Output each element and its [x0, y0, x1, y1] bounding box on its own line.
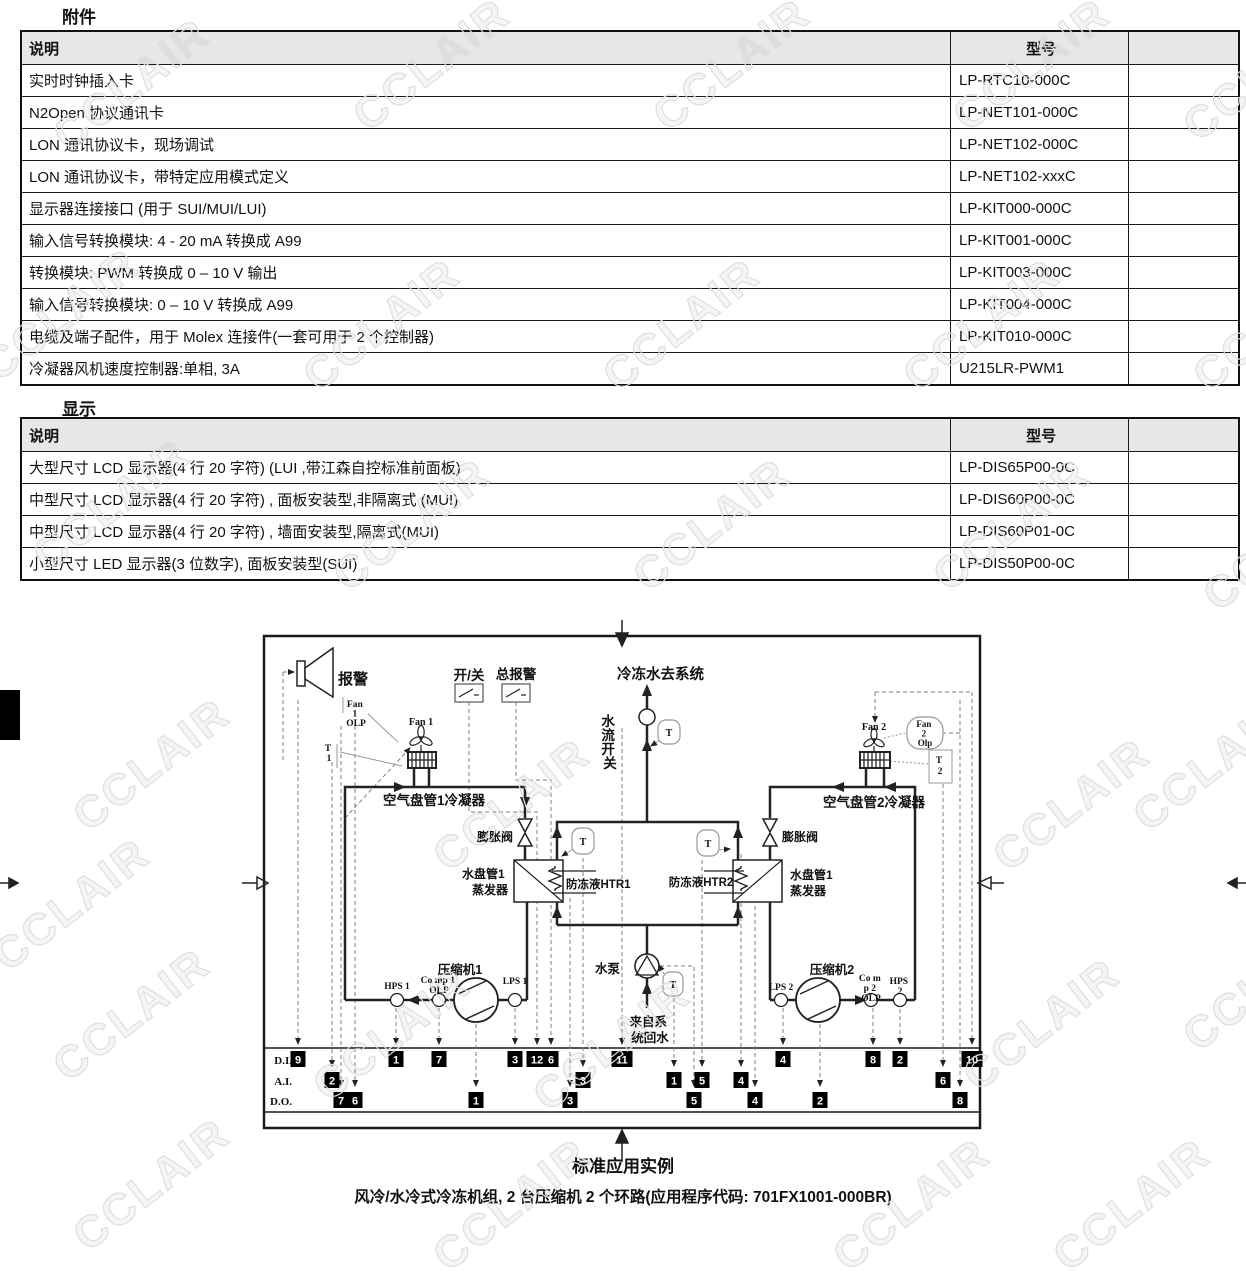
blank-cell: [1129, 129, 1239, 161]
terminal-do-3: 3: [563, 1092, 578, 1108]
terminal-do-7: 7: [334, 1092, 349, 1108]
col-header-description: 说明: [21, 418, 951, 452]
comp1-olp-label: Co mp 1 OLP: [421, 976, 458, 996]
pump-temp-sensor: T: [663, 972, 683, 996]
general-alarm-label: 总报警: [496, 666, 537, 682]
description-cell: 转换模块: PWM 转换成 0 – 10 V 输出: [21, 257, 951, 289]
svg-text:4: 4: [780, 1055, 787, 1067]
model-cell: LP-RTC10-000C: [951, 65, 1129, 97]
piping: [345, 688, 915, 1008]
blank-cell: [1129, 257, 1239, 289]
fan2-label: Fan 2: [862, 722, 886, 733]
condenser1-coil-icon: [408, 752, 436, 768]
model-cell: LP-KIT003-000C: [951, 257, 1129, 289]
terminal-di-3: 3: [508, 1051, 523, 1067]
description-cell: 中型尺寸 LCD 显示器(4 行 20 字符) , 墙面安装型,隔离式(MUI): [21, 516, 951, 548]
chilled-water-out-label: 冷冻水去系统: [617, 665, 704, 683]
svg-text:3: 3: [567, 1096, 573, 1108]
blank-cell: [1129, 289, 1239, 321]
compressor1-label: 压缩机1: [438, 962, 483, 977]
svg-text:5: 5: [699, 1076, 705, 1088]
blank-cell: [1129, 548, 1239, 581]
sensor-leaders: [337, 697, 928, 974]
table-header-row: 说明 型号: [21, 31, 1239, 65]
table-header-row: 说明 型号: [21, 418, 1239, 452]
svg-text:6: 6: [548, 1055, 554, 1067]
svg-text:7: 7: [436, 1055, 442, 1067]
svg-text:9: 9: [295, 1055, 301, 1067]
terminal-di-4: 4: [776, 1051, 791, 1067]
svg-text:12: 12: [531, 1055, 543, 1067]
row-di-label: D.I.: [274, 1055, 292, 1067]
pump-label: 水泵: [595, 961, 621, 976]
terminal-do-8: 8: [953, 1092, 968, 1108]
fan1-label: Fan 1: [409, 717, 433, 728]
col-header-blank: [1129, 418, 1239, 452]
lps1-switch: [509, 994, 522, 1007]
svg-text:1: 1: [473, 1096, 479, 1108]
svg-text:8: 8: [957, 1096, 963, 1108]
flow-switch-icon: [639, 709, 655, 725]
terminal-do-5: 5: [687, 1092, 702, 1108]
expansion-valve1-icon: [518, 819, 532, 846]
hps1-switch: [391, 994, 404, 1007]
expansion-valve1-label: 膨胀阀: [476, 829, 513, 844]
terminal-di-8: 8: [866, 1051, 881, 1067]
svg-text:1: 1: [393, 1055, 399, 1067]
table-row: N2Open 协议通讯卡LP-NET101-000C: [21, 97, 1239, 129]
svg-text:10: 10: [966, 1055, 978, 1067]
terminal-do-2: 2: [813, 1092, 828, 1108]
blank-cell: [1129, 484, 1239, 516]
description-cell: 电缆及端子配件，用于 Molex 连接件(一套可用于 2 个控制器): [21, 321, 951, 353]
col-header-model: 型号: [951, 31, 1129, 65]
col-header-description: 说明: [21, 31, 951, 65]
svg-text:2: 2: [897, 1055, 903, 1067]
table-row: 输入信号转换模块: 4 - 20 mA 转换成 A99LP-KIT001-000…: [21, 225, 1239, 257]
model-cell: LP-KIT004-000C: [951, 289, 1129, 321]
terminal-ai-5: 5: [695, 1072, 710, 1088]
blank-cell: [1129, 97, 1239, 129]
lps2-label: LPS 2: [769, 983, 794, 993]
description-cell: 冷凝器风机速度控制器:单相, 3A: [21, 353, 951, 386]
svg-text:4: 4: [738, 1076, 745, 1088]
attachments-table: 说明 型号 实时时钟插入卡LP-RTC10-000CN2Open 协议通讯卡LP…: [20, 30, 1240, 386]
table-row: 小型尺寸 LED 显示器(3 位数字), 面板安装型(SUI)LP-DIS50P…: [21, 548, 1239, 581]
svg-text:3: 3: [512, 1055, 518, 1067]
t1-label: T 1: [325, 744, 334, 764]
alarm-label: 报警: [338, 670, 368, 688]
return-water-label: 来自系 统回水: [629, 1014, 671, 1045]
table-row: 中型尺寸 LCD 显示器(4 行 20 字符) , 墙面安装型,隔离式(MUI)…: [21, 516, 1239, 548]
table-row: 冷凝器风机速度控制器:单相, 3AU215LR-PWM1: [21, 353, 1239, 386]
terminal-di-2: 2: [893, 1051, 908, 1067]
caption-subtitle: 风冷/水冷式冷冻机组, 2 台压缩机 2 个环路(应用程序代码: 701FX10…: [354, 1187, 891, 1206]
svg-text:11: 11: [616, 1055, 628, 1067]
model-cell: LP-KIT000-000C: [951, 193, 1129, 225]
terminal-ai-3: 3: [576, 1072, 591, 1088]
model-cell: U215LR-PWM1: [951, 353, 1129, 386]
evap1-temp-sensor: T: [572, 828, 594, 854]
terminal-di-7: 7: [432, 1051, 447, 1067]
displays-table: 说明 型号 大型尺寸 LCD 显示器(4 行 20 字符) (LUI ,带江森自…: [20, 417, 1240, 581]
blank-cell: [1129, 193, 1239, 225]
table-row: 转换模块: PWM 转换成 0 – 10 V 输出LP-KIT003-000C: [21, 257, 1239, 289]
svg-text:8: 8: [870, 1055, 876, 1067]
col-header-model: 型号: [951, 418, 1129, 452]
model-cell: LP-DIS65P00-0C: [951, 452, 1129, 484]
evaporator1-label: 水盘管1 蒸发器: [462, 866, 509, 897]
description-cell: LON 通讯协议卡，带特定应用模式定义: [21, 161, 951, 193]
description-cell: LON 通讯协议卡，现场调试: [21, 129, 951, 161]
on-off-switch-icon: [455, 684, 483, 702]
svg-text:3: 3: [580, 1076, 586, 1088]
terminal-ai-2: 2: [325, 1072, 340, 1088]
description-cell: 中型尺寸 LCD 显示器(4 行 20 字符) , 面板安装型,非隔离式 (MU…: [21, 484, 951, 516]
expansion-valve2-icon: [763, 819, 777, 846]
expansion-valve2-label: 膨胀阀: [781, 829, 818, 844]
blank-cell: [1129, 321, 1239, 353]
blank-cell: [1129, 353, 1239, 386]
alarm-speaker-icon: [297, 648, 333, 697]
table-row: 中型尺寸 LCD 显示器(4 行 20 字符) , 面板安装型,非隔离式 (MU…: [21, 484, 1239, 516]
model-cell: LP-KIT010-000C: [951, 321, 1129, 353]
terminal-di-10: 10: [962, 1051, 983, 1067]
condenser2-label: 空气盘管2冷凝器: [823, 794, 926, 810]
compressor1-icon: [454, 978, 498, 1022]
caption-title: 标准应用实例: [572, 1156, 674, 1176]
model-cell: LP-NET102-000C: [951, 129, 1129, 161]
svg-text:2: 2: [817, 1096, 823, 1108]
table-row: 实时时钟插入卡LP-RTC10-000C: [21, 65, 1239, 97]
lps2-switch: [775, 994, 788, 1007]
condenser2-coil-icon: [860, 752, 890, 768]
model-cell: LP-KIT001-000C: [951, 225, 1129, 257]
table-row: 显示器连接接口 (用于 SUI/MUI/LUI)LP-KIT000-000C: [21, 193, 1239, 225]
description-cell: 输入信号转换模块: 0 – 10 V 转换成 A99: [21, 289, 951, 321]
pump-icon: [635, 954, 659, 978]
terminal-ai-1: 1: [667, 1072, 682, 1088]
svg-text:T: T: [670, 980, 677, 991]
svg-text:6: 6: [940, 1076, 946, 1088]
lps1-label: LPS 1: [503, 977, 528, 987]
svg-text:T: T: [705, 839, 712, 850]
description-cell: 小型尺寸 LED 显示器(3 位数字), 面板安装型(SUI): [21, 548, 951, 581]
model-cell: LP-DIS60P01-0C: [951, 516, 1129, 548]
compressor2-icon: [796, 978, 840, 1022]
flow-entry-arrows: [0, 620, 1246, 1162]
terminal-di-1: 1: [389, 1051, 404, 1067]
water-flow-switch-label: 水 流 开 关: [601, 713, 618, 771]
row-do-label: D.O.: [270, 1096, 292, 1108]
fan2-olp-bubble: Fan 2 Olp: [907, 717, 943, 749]
evaporator2-label: 水盘管1 蒸发器: [790, 867, 836, 898]
t2-sensor: T 2: [929, 750, 952, 783]
terminal-do-1: 1: [469, 1092, 484, 1108]
model-cell: LP-DIS60P00-0C: [951, 484, 1129, 516]
general-alarm-switch-icon: [502, 684, 530, 702]
htr1-label: 防冻液HTR1: [566, 877, 631, 891]
terminal-di-11: 11: [612, 1051, 633, 1067]
blank-cell: [1129, 161, 1239, 193]
svg-text:5: 5: [691, 1096, 697, 1108]
table-row: LON 通讯协议卡，现场调试LP-NET102-000C: [21, 129, 1239, 161]
blank-cell: [1129, 225, 1239, 257]
diagram-frame: [0, 620, 1246, 1162]
svg-text:1: 1: [671, 1076, 677, 1088]
on-off-label: 开/关: [454, 667, 485, 683]
supply-temp-sensor: T: [658, 720, 680, 744]
svg-text:7: 7: [338, 1096, 344, 1108]
svg-text:T: T: [666, 728, 673, 739]
description-cell: N2Open 协议通讯卡: [21, 97, 951, 129]
model-cell: LP-NET101-000C: [951, 97, 1129, 129]
application-schematic: 报警 Fan 1 Fan 1 OLP T 1 空气盘管1冷凝器 开/关 总报警 …: [0, 620, 1246, 1232]
hps2-label: HPS 2: [890, 977, 911, 997]
blank-cell: [1129, 65, 1239, 97]
table-row: 输入信号转换模块: 0 – 10 V 转换成 A99LP-KIT004-000C: [21, 289, 1239, 321]
condenser1-label: 空气盘管1冷凝器: [383, 792, 486, 808]
fan1-icon: [409, 726, 434, 753]
svg-text:6: 6: [352, 1096, 358, 1108]
table-row: LON 通讯协议卡，带特定应用模式定义LP-NET102-xxxC: [21, 161, 1239, 193]
fan1-olp-label: Fan 1 OLP: [346, 700, 366, 729]
col-header-blank: [1129, 31, 1239, 65]
svg-text:T: T: [580, 837, 587, 848]
terminal-do-6: 6: [348, 1092, 363, 1108]
terminal-di-6: 6: [544, 1051, 559, 1067]
description-cell: 实时时钟插入卡: [21, 65, 951, 97]
blank-cell: [1129, 516, 1239, 548]
description-cell: 输入信号转换模块: 4 - 20 mA 转换成 A99: [21, 225, 951, 257]
htr2-label: 防冻液HTR2: [669, 875, 734, 889]
svg-text:2: 2: [329, 1076, 335, 1088]
blank-cell: [1129, 452, 1239, 484]
terminal-di-9: 9: [291, 1051, 306, 1067]
model-cell: LP-NET102-xxxC: [951, 161, 1129, 193]
table-row: 大型尺寸 LCD 显示器(4 行 20 字符) (LUI ,带江森自控标准前面板…: [21, 452, 1239, 484]
description-cell: 显示器连接接口 (用于 SUI/MUI/LUI): [21, 193, 951, 225]
description-cell: 大型尺寸 LCD 显示器(4 行 20 字符) (LUI ,带江森自控标准前面板…: [21, 452, 951, 484]
compressor2-label: 压缩机2: [810, 962, 855, 977]
evap2-temp-sensor: T: [697, 830, 719, 856]
attachments-heading: 附件: [62, 3, 96, 28]
hps1-label: HPS 1: [384, 982, 410, 992]
terminal-ai-4: 4: [734, 1072, 749, 1088]
row-ai-label: A.I.: [274, 1076, 292, 1088]
svg-text:4: 4: [752, 1096, 759, 1108]
model-cell: LP-DIS50P00-0C: [951, 548, 1129, 581]
terminal-ai-6: 6: [936, 1072, 951, 1088]
terminal-do-4: 4: [748, 1092, 763, 1108]
comp2-olp-label: Co m p 2 OLP: [859, 974, 883, 1004]
table-row: 电缆及端子配件，用于 Molex 连接件(一套可用于 2 个控制器)LP-KIT…: [21, 321, 1239, 353]
